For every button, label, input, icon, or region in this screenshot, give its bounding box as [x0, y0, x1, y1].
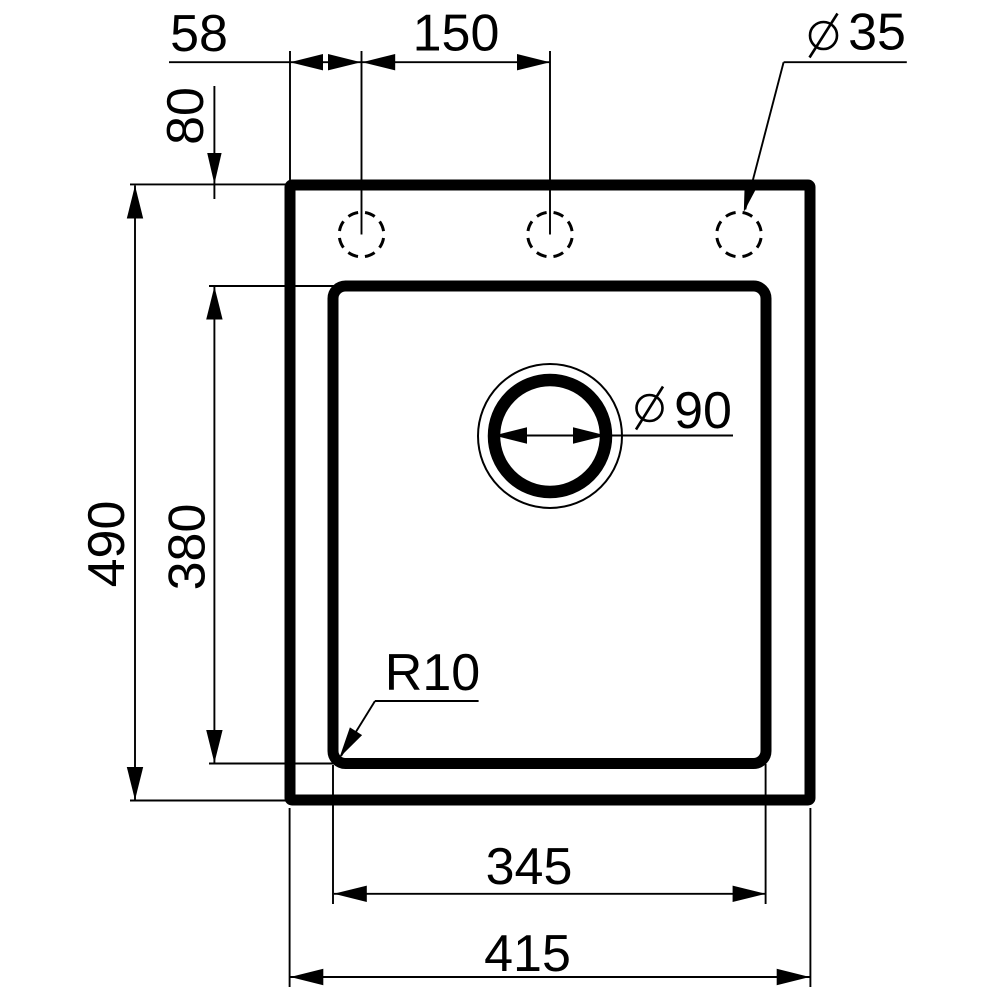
svg-text:415: 415 [484, 925, 571, 983]
svg-text:380: 380 [159, 504, 217, 591]
svg-text:345: 345 [486, 838, 573, 896]
svg-text:80: 80 [157, 87, 215, 145]
svg-text:90: 90 [674, 382, 732, 440]
svg-text:58: 58 [170, 5, 228, 63]
svg-text:490: 490 [78, 501, 136, 588]
svg-text:R10: R10 [385, 644, 480, 702]
svg-text:35: 35 [848, 4, 906, 62]
svg-text:150: 150 [413, 5, 500, 63]
